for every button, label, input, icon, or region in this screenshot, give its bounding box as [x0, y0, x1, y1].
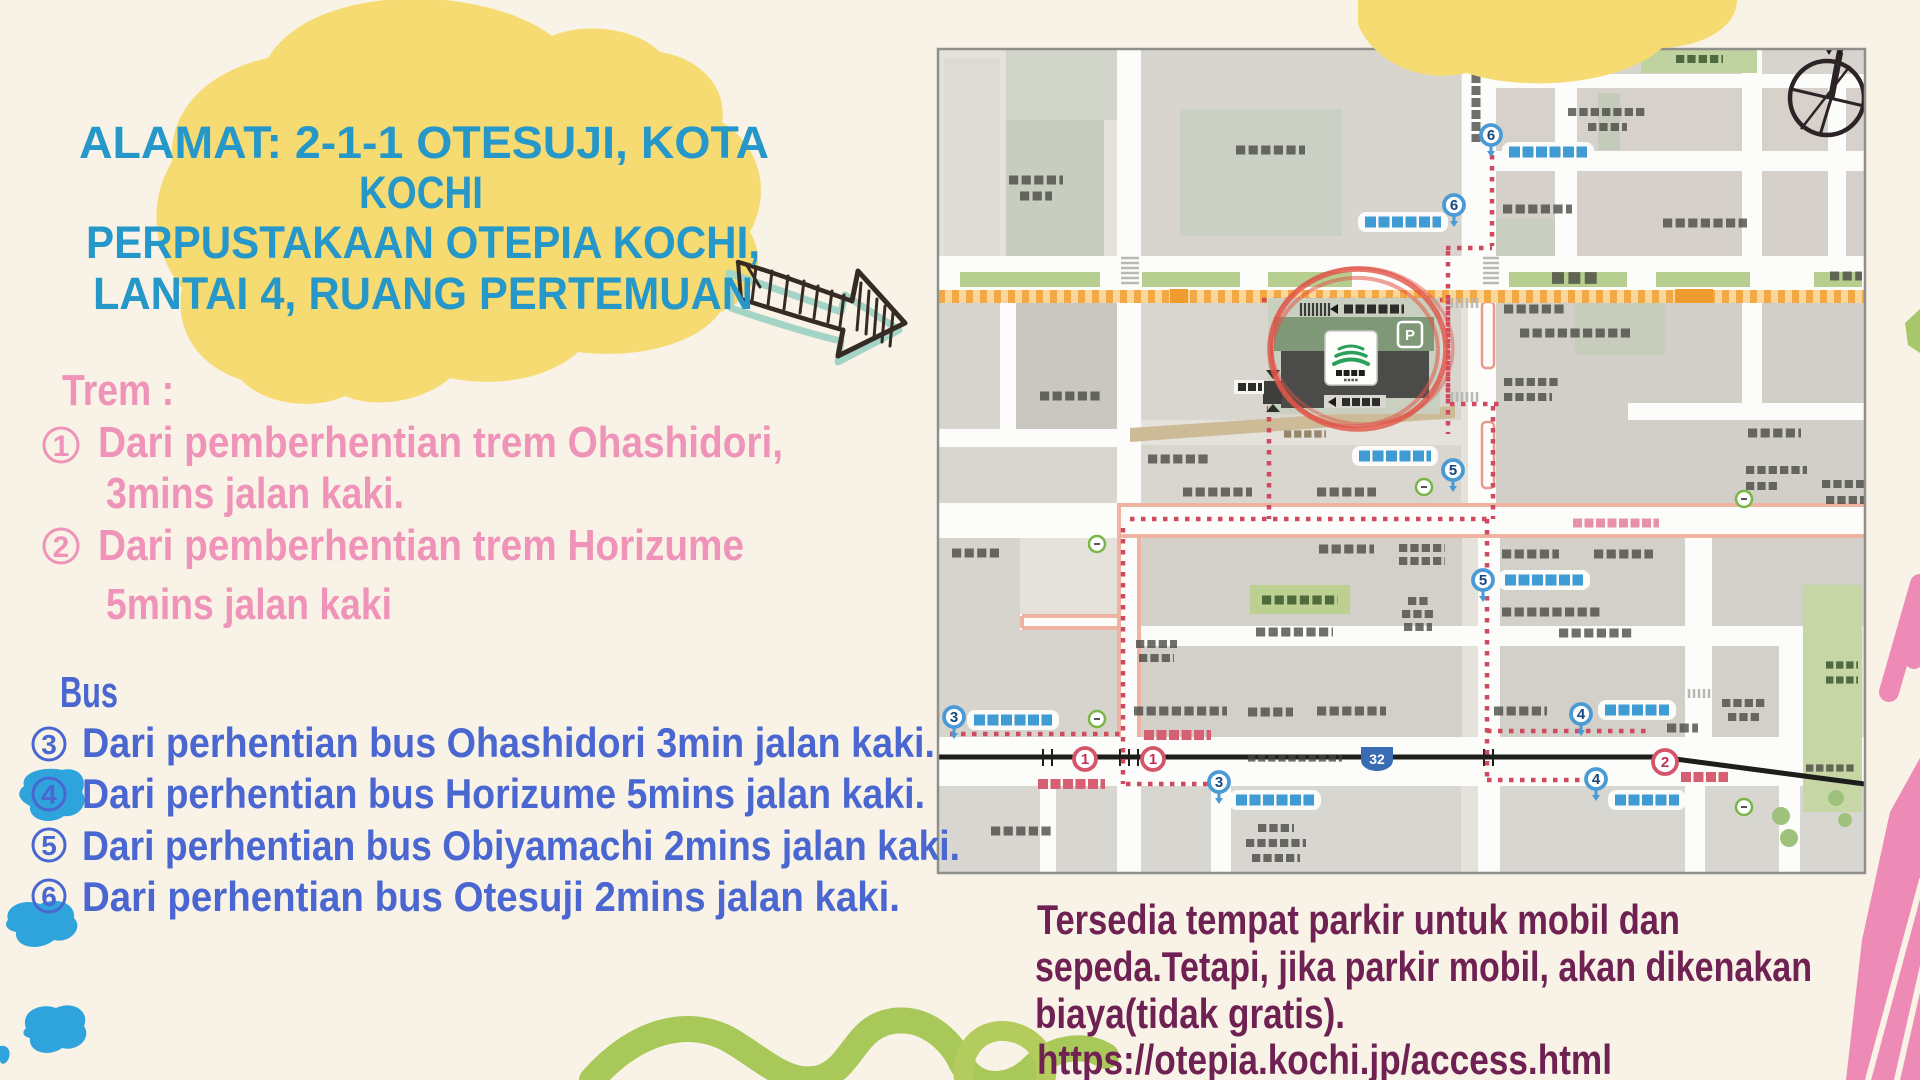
- svg-text:Bus: Bus: [60, 668, 118, 717]
- svg-text:4: 4: [1592, 771, 1601, 788]
- svg-text:LANTAI 4, RUANG PERTEMUAN: LANTAI 4, RUANG PERTEMUAN: [93, 268, 753, 319]
- svg-text:6: 6: [1487, 127, 1495, 144]
- svg-text:5: 5: [1479, 572, 1487, 589]
- svg-text:1: 1: [1081, 751, 1089, 768]
- svg-text:5mins jalan kaki: 5mins jalan kaki: [106, 580, 392, 629]
- svg-text:https://otepia.kochi.jp/access: https://otepia.kochi.jp/access.html: [1037, 1036, 1612, 1080]
- svg-text:6: 6: [41, 881, 57, 912]
- svg-text:5: 5: [1449, 462, 1457, 479]
- svg-text:Dari perhentian bus Obiyamachi: Dari perhentian bus Obiyamachi 2mins jal…: [82, 822, 960, 869]
- svg-text:KOCHI: KOCHI: [359, 167, 483, 218]
- svg-text:5: 5: [41, 830, 57, 861]
- svg-text:6: 6: [1450, 197, 1458, 214]
- svg-text:Dari perhentian bus Horizume 5: Dari perhentian bus Horizume 5mins jalan…: [82, 770, 925, 817]
- svg-text:sepeda.Tetapi, jika parkir mob: sepeda.Tetapi, jika parkir mobil, akan d…: [1035, 943, 1812, 990]
- svg-text:Trem :: Trem :: [62, 366, 174, 415]
- svg-text:1: 1: [53, 430, 70, 463]
- svg-text:3mins jalan kaki.: 3mins jalan kaki.: [106, 469, 404, 518]
- svg-text:32: 32: [1369, 751, 1385, 767]
- svg-text:2: 2: [1661, 754, 1669, 771]
- svg-text:biaya(tidak gratis).: biaya(tidak gratis).: [1035, 990, 1345, 1037]
- svg-text:P: P: [1405, 327, 1415, 344]
- svg-text:4: 4: [1577, 706, 1586, 723]
- svg-text:1: 1: [1149, 751, 1157, 768]
- svg-text:3: 3: [950, 709, 958, 726]
- svg-text:3: 3: [1215, 774, 1223, 791]
- svg-text:2: 2: [53, 531, 70, 564]
- svg-text:Dari pemberhentian trem Horizu: Dari pemberhentian trem Horizume: [98, 521, 744, 570]
- svg-text:ALAMAT: 2-1-1 OTESUJI, KOTA: ALAMAT: 2-1-1 OTESUJI, KOTA: [79, 117, 769, 168]
- svg-text:Dari perhentian bus Otesuji 2m: Dari perhentian bus Otesuji 2mins jalan …: [82, 873, 900, 920]
- svg-text:Dari perhentian bus Ohashidori: Dari perhentian bus Ohashidori 3min jala…: [82, 719, 935, 766]
- svg-text:PERPUSTAKAAN OTEPIA KOCHI,: PERPUSTAKAAN OTEPIA KOCHI,: [86, 217, 760, 268]
- svg-text:Dari pemberhentian trem Ohashi: Dari pemberhentian trem Ohashidori,: [98, 418, 783, 467]
- svg-text:Tersedia tempat parkir untuk m: Tersedia tempat parkir untuk mobil dan: [1037, 896, 1680, 943]
- svg-text:4: 4: [41, 779, 57, 810]
- svg-text:3: 3: [41, 729, 57, 760]
